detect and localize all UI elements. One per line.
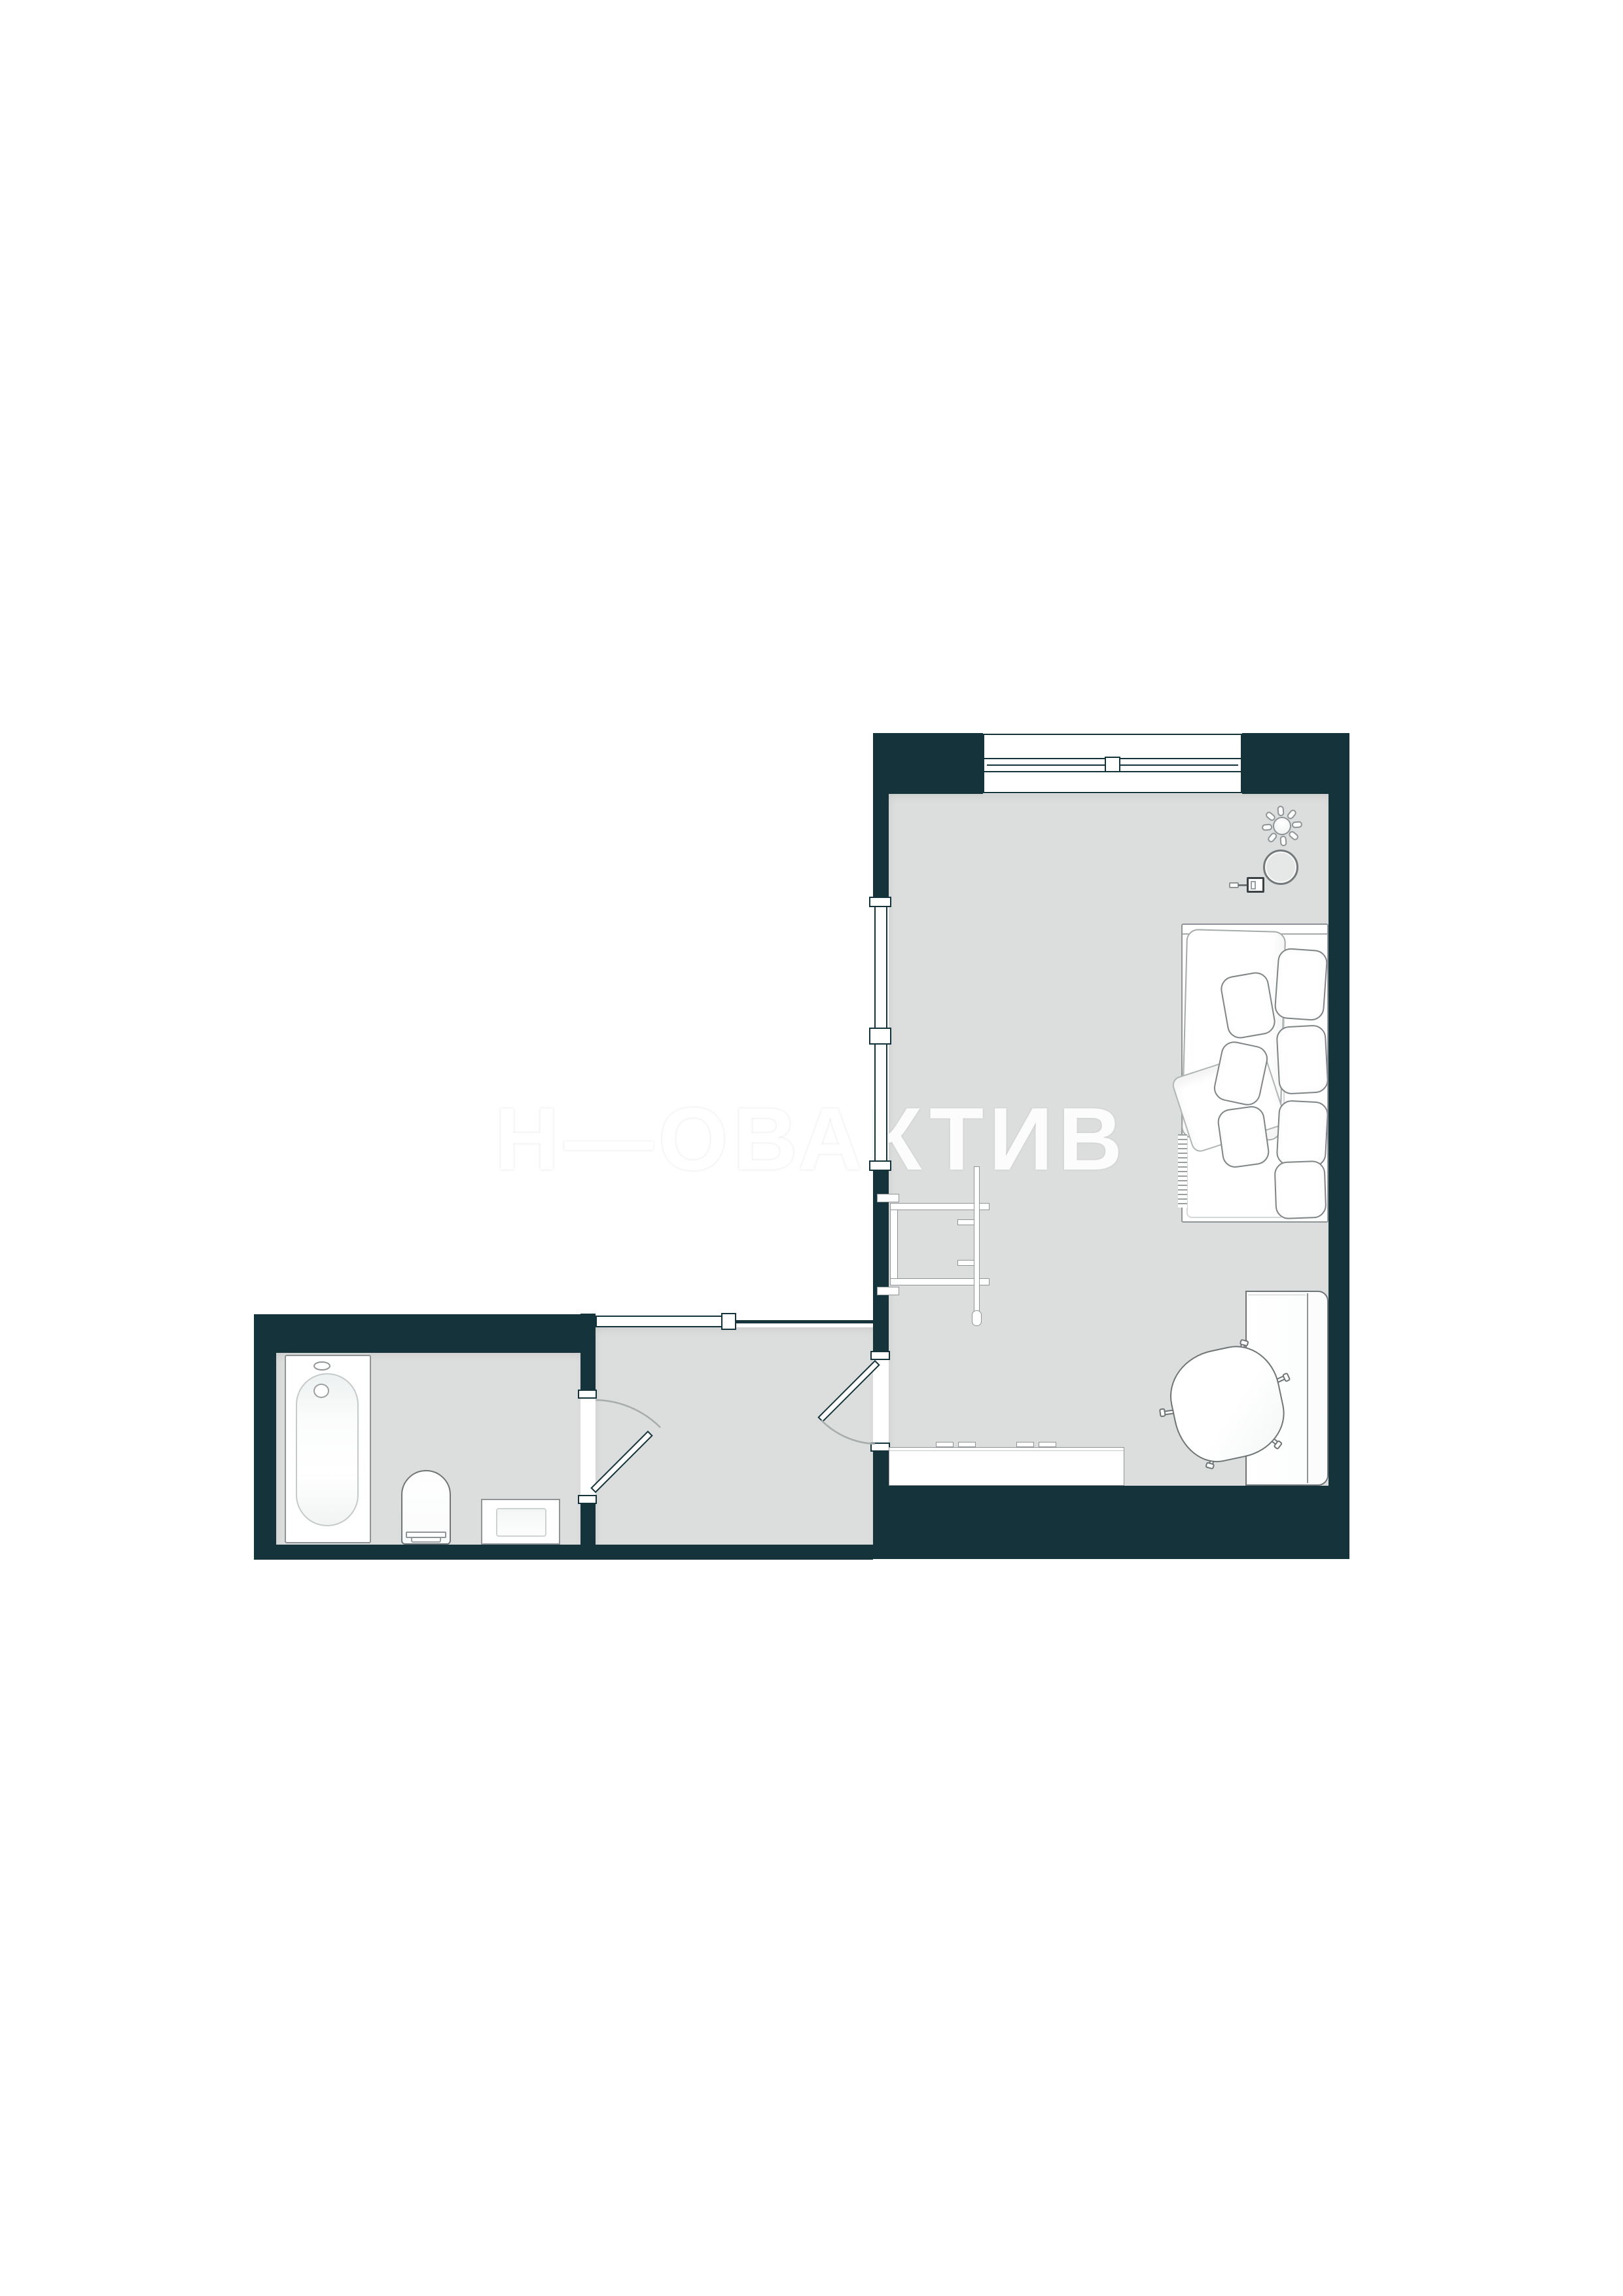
glazing-mullion [869,1028,891,1045]
rack-pole-cap [972,1310,982,1326]
pillow [1216,1104,1271,1169]
wall-hallway-top-line [735,1320,873,1323]
rack-frame-left [890,1203,898,1285]
entry-door [596,1316,722,1327]
pillow [1274,1160,1327,1220]
bathtub [285,1355,371,1543]
clothes-rack [877,1166,995,1326]
counter-edge-line [889,1450,1124,1451]
toilet-base [406,1532,446,1538]
sconce-stem [1238,884,1247,886]
rack-bracket-top [877,1194,899,1202]
bathtub-faucet [313,1361,330,1371]
living-door-cap-bottom [870,1443,890,1452]
chair-seat [1162,1338,1293,1469]
bathtub-drain [313,1384,329,1398]
counter-handle [958,1442,976,1447]
round-mirror [1263,850,1298,885]
wall-living-right [1329,733,1349,1559]
living-door-cap-top [870,1351,890,1360]
window-sill-inner [983,771,1242,793]
light-bulb [1279,836,1287,847]
page-background: { "watermark": { "text": "Н—ОВАКТИВ" }, … [0,0,1623,2296]
pillow [1274,947,1328,1021]
wall-living-top-left [873,733,983,794]
wall-living-left-below-door [873,1452,889,1486]
counter-handle [936,1442,954,1447]
bathroom-door-cap-bottom [578,1495,597,1504]
rack-bracket-bottom [877,1287,899,1295]
wall-bathroom-right-upper [580,1314,596,1390]
sconce-inner [1251,881,1256,889]
hallway-floor [596,1327,873,1545]
wall-bathroom-right-lower [580,1504,596,1545]
counter-handle [1016,1442,1034,1447]
desk-edge-line [1248,1295,1306,1295]
window-frame [983,758,1242,772]
rack-hanger [957,1219,974,1225]
rack-pole [974,1166,980,1312]
desk-divider [1307,1293,1308,1483]
bathroom-door-cap-top [578,1390,597,1399]
wall-bottom-left-block [254,1545,873,1560]
wall-living-bottom [873,1486,1349,1559]
light-bulb [1292,821,1303,828]
rack-hanger [957,1260,974,1266]
entry-door-post [721,1313,736,1330]
sink-cabinet [481,1499,560,1545]
wall-living-left-upper [873,733,889,898]
toilet-base-notch [411,1538,441,1543]
sink-basin [496,1508,546,1537]
bathtub-basin [296,1373,359,1526]
toilet [401,1470,451,1545]
wall-sconce [1229,877,1266,894]
pillow [1275,1100,1329,1168]
sconce-body [1247,877,1264,893]
watermark: Н—ОВАКТИВ [495,1094,1128,1183]
window-sill-outer [983,734,1242,759]
sofa-bed [1181,924,1329,1223]
sconce-prong [1229,882,1239,888]
pillow [1275,1024,1329,1095]
glazing-cap-top [869,897,891,907]
light-bulb [1262,823,1273,831]
blanket-fringe [1178,1134,1187,1208]
office-chair [1152,1316,1302,1492]
counter-handle [1039,1442,1056,1447]
light-bulb [1277,806,1284,817]
floor-plan: Н—ОВАКТИВ [0,0,1623,2296]
wall-bathroom-top [254,1314,596,1353]
kitchen-counter [889,1447,1124,1486]
